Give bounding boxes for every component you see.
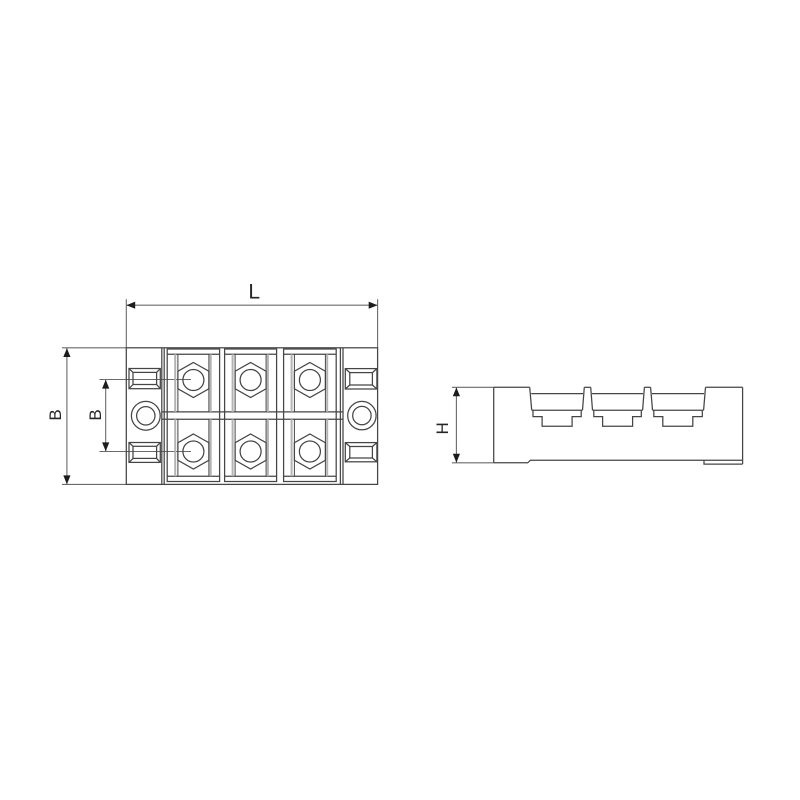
svg-text:H: H: [433, 422, 452, 434]
svg-text:B: B: [86, 409, 105, 420]
svg-text:B: B: [46, 409, 65, 420]
svg-text:L: L: [248, 280, 260, 303]
